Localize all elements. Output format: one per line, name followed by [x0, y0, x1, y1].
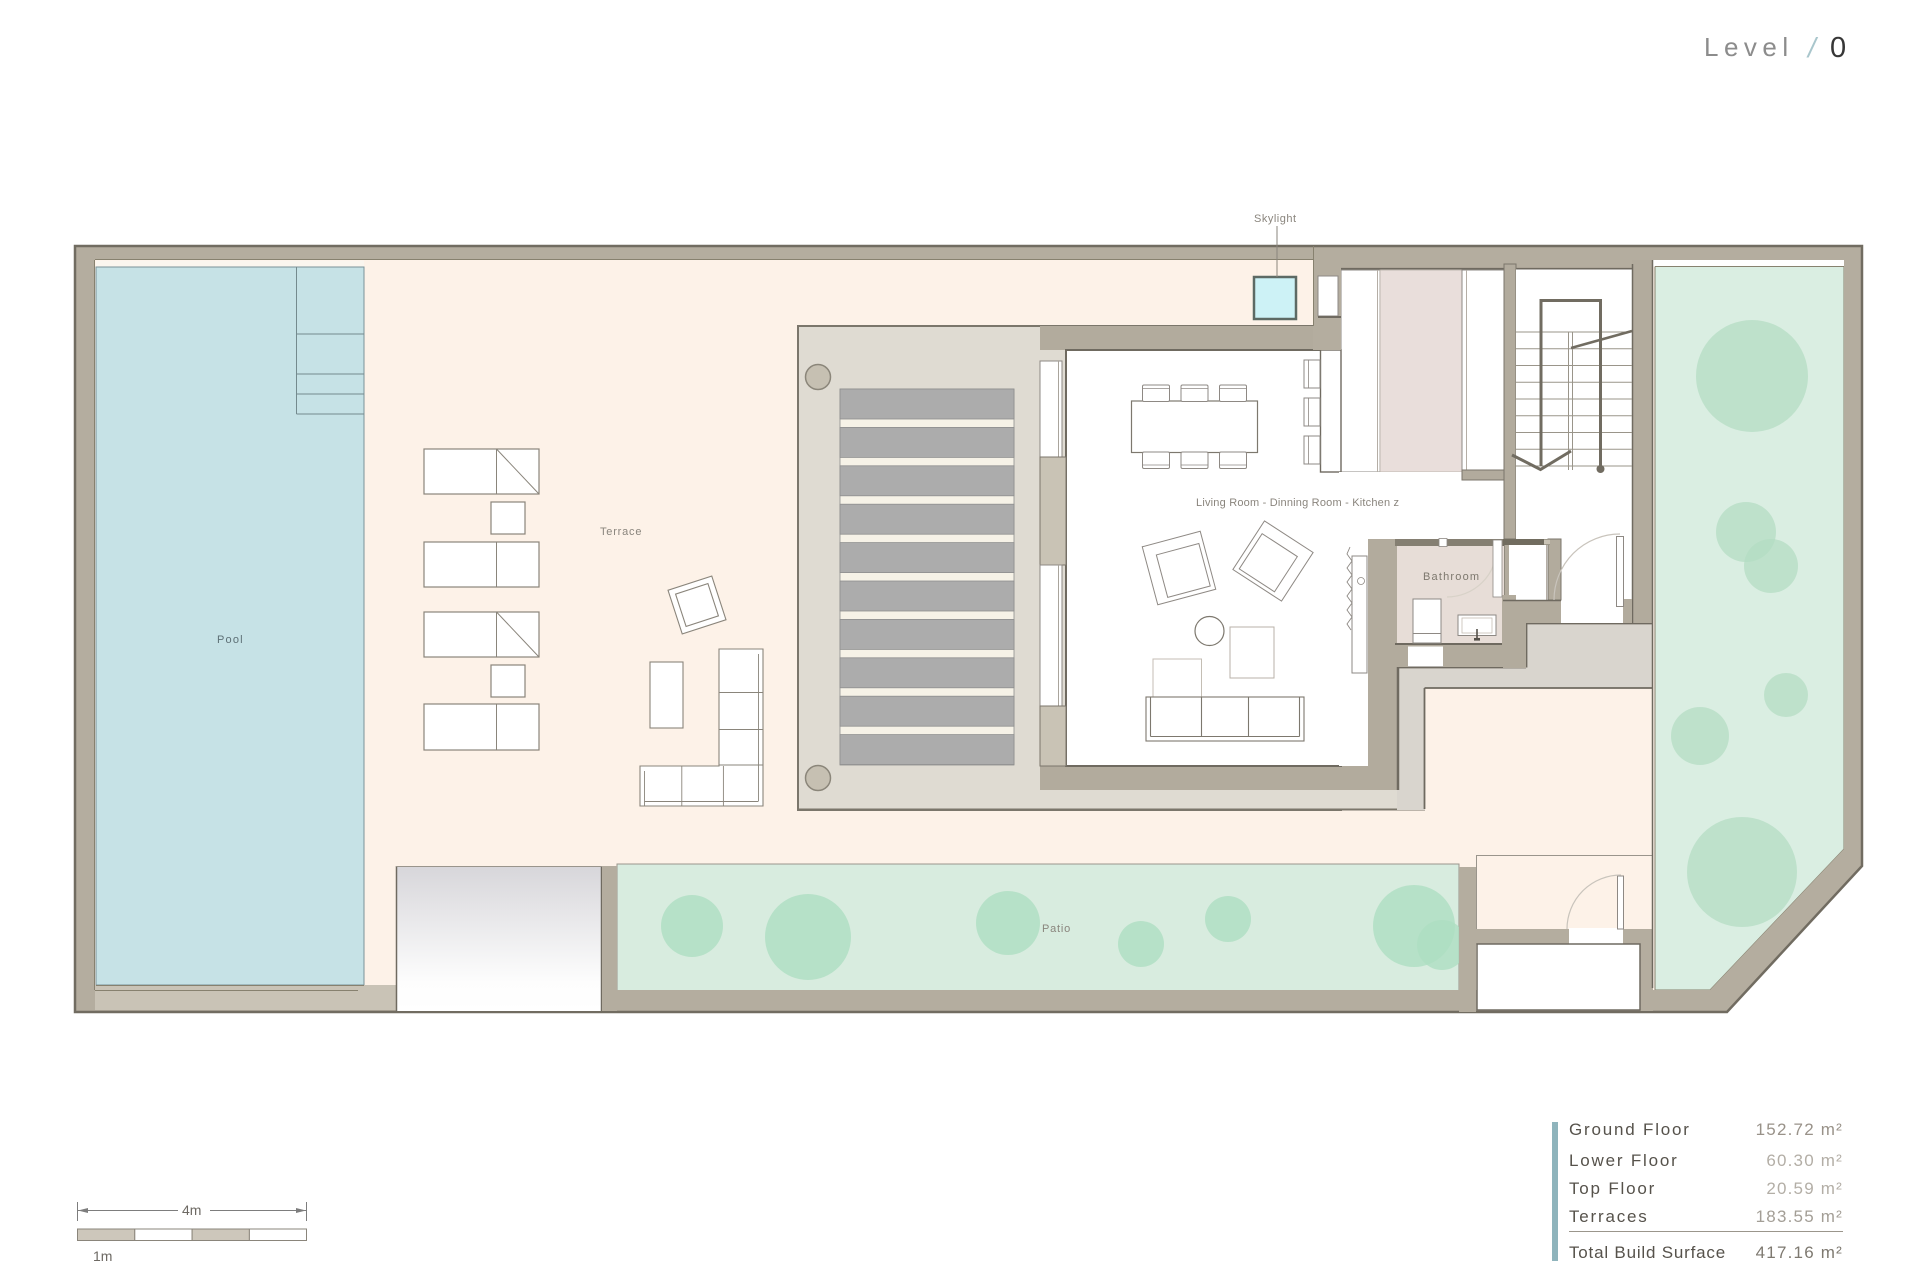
svg-text:Level: Level [1704, 32, 1794, 62]
svg-text:Lower Floor: Lower Floor [1569, 1151, 1679, 1170]
svg-text:60.30 m²: 60.30 m² [1766, 1151, 1843, 1170]
svg-text:183.55 m²: 183.55 m² [1756, 1207, 1843, 1226]
svg-text:4m: 4m [182, 1202, 201, 1218]
svg-text:0: 0 [1830, 32, 1846, 64]
svg-text:Living Room - Dinning Room - K: Living Room - Dinning Room - Kitchen z [1196, 497, 1399, 509]
svg-text:Ground Floor: Ground Floor [1569, 1120, 1691, 1139]
svg-text:152.72 m²: 152.72 m² [1756, 1120, 1843, 1139]
svg-text:Bathroom: Bathroom [1423, 571, 1480, 583]
svg-text:Terrace: Terrace [600, 526, 642, 538]
svg-text:Pool: Pool [217, 634, 244, 646]
svg-text:417.16 m²: 417.16 m² [1756, 1243, 1843, 1262]
svg-text:20.59 m²: 20.59 m² [1766, 1179, 1843, 1198]
svg-text:Total Build Surface: Total Build Surface [1569, 1243, 1726, 1262]
svg-text:Top Floor: Top Floor [1569, 1179, 1656, 1198]
svg-text:Patio: Patio [1042, 923, 1071, 935]
svg-text:Terraces: Terraces [1569, 1207, 1649, 1226]
svg-text:1m: 1m [93, 1248, 112, 1264]
svg-text:Skylight: Skylight [1254, 213, 1297, 225]
